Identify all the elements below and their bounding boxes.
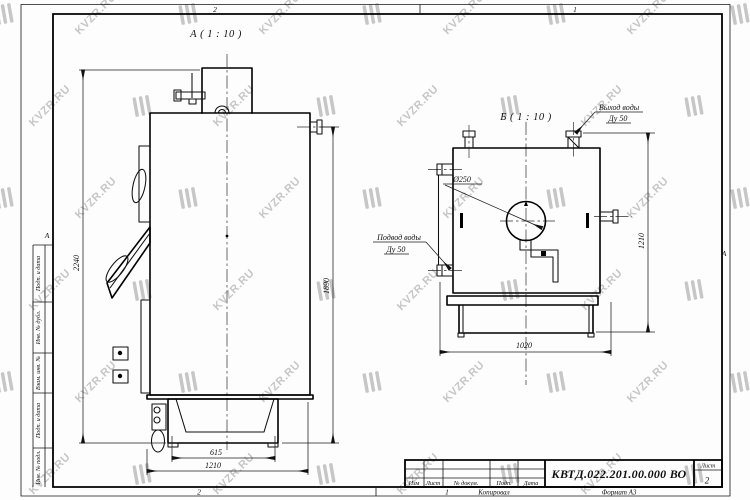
dim-1210-depth: 1210 <box>205 461 221 470</box>
outlet-label-line1: Выход воды <box>599 103 640 112</box>
dim-1890: 1890 <box>322 278 331 294</box>
dim-615: 615 <box>210 448 222 457</box>
view-b-label: Б ( 1 : 10 ) <box>499 112 552 123</box>
side-col-label: Взам. инв. № <box>35 356 42 390</box>
doc-number: КВТД.022.201.00.000 ВО <box>551 467 687 481</box>
view-b-boiler-rear: 1020 1210 Б ( 1 : 10 ) Ø250 Выход воды Д… <box>373 103 655 385</box>
zone-top-2: 2 <box>213 5 217 14</box>
inlet-label-line1: Подвод воды <box>376 233 421 242</box>
side-col-label: Инв. № дубл. <box>35 311 42 346</box>
technical-drawing: 2 1 2 1 А А Копировал Формат А3 Подп. и … <box>0 0 750 500</box>
zone-top-1: 1 <box>573 5 577 14</box>
dim-2240: 2240 <box>72 255 81 271</box>
zone-left-a: А <box>44 231 50 240</box>
view-a-boiler-side: 2240 1890 615 1210 А ( 1 : 10 ) <box>72 29 339 475</box>
zone-right-a: А <box>721 249 727 258</box>
zone-bottom-2: 2 <box>197 488 201 497</box>
footer-copied: Копировал <box>477 489 509 497</box>
drawing-sheet: KVZR.RUKVZR.RUKVZR.RUKVZR.RUKVZR.RUKVZR.… <box>0 0 750 500</box>
dim-1210-height: 1210 <box>637 233 646 249</box>
inlet-label-line2: Ду 50 <box>386 245 406 254</box>
side-columns: Подп. и дата Инв. № дубл. Взам. инв. № П… <box>33 245 53 487</box>
zone-bottom-1: 1 <box>445 488 449 497</box>
title-col-list: Лист <box>425 480 441 487</box>
side-col-label: Инв. № подл. <box>35 450 42 485</box>
sheet-number: 2 <box>705 476 710 486</box>
dim-1020: 1020 <box>516 341 532 350</box>
side-col-label: Подп. и дата <box>35 403 42 439</box>
title-col-data: Дата <box>523 480 539 487</box>
side-col-label: Подп. и дата <box>35 256 42 292</box>
footer-format: Формат А3 <box>602 489 637 497</box>
title-col-ndoc: № докум. <box>453 480 479 487</box>
flue-diameter-label: Ø250 <box>452 175 471 184</box>
title-col-izm: Изм <box>408 480 420 487</box>
title-col-podp: Подп. <box>495 480 511 487</box>
title-block: Изм Лист № докум. Подп. Дата КВТД.022.20… <box>405 460 722 487</box>
sheet-label: Лист <box>700 463 716 470</box>
sheet-frame: 2 1 2 1 А А Копировал Формат А3 Подп. и … <box>21 5 730 497</box>
outlet-label-line2: Ду 50 <box>608 114 628 123</box>
view-a-label: А ( 1 : 10 ) <box>189 29 242 40</box>
